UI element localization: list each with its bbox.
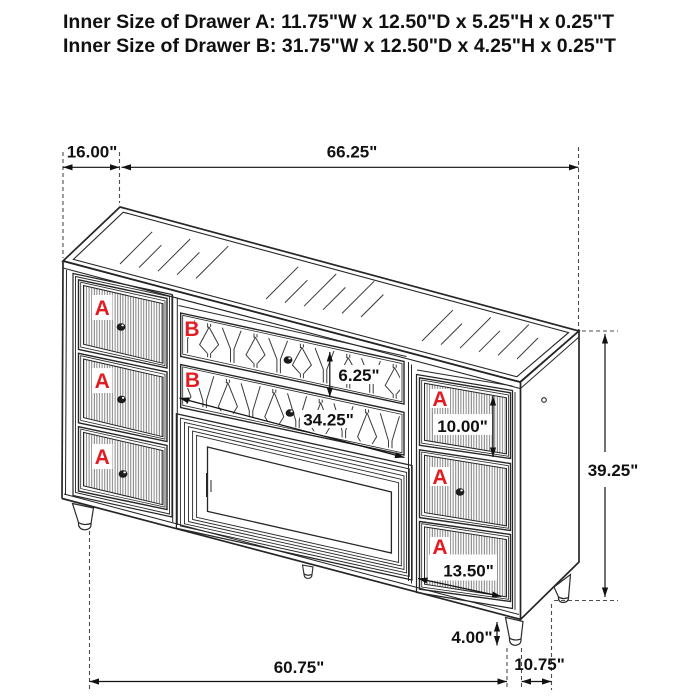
svg-text:A: A	[432, 388, 447, 411]
svg-text:10.00": 10.00"	[437, 417, 488, 436]
svg-text:13.50": 13.50"	[443, 562, 494, 581]
svg-text:16.00": 16.00"	[67, 143, 118, 162]
svg-text:A: A	[95, 370, 110, 393]
svg-text:Inner Size of Drawer A: 11.75": Inner Size of Drawer A: 11.75"W x 12.50"…	[63, 11, 614, 33]
svg-text:A: A	[95, 446, 110, 469]
svg-text:34.25": 34.25"	[303, 411, 354, 430]
svg-text:6.25": 6.25"	[338, 366, 379, 385]
svg-text:39.25": 39.25"	[588, 461, 639, 480]
svg-text:66.25": 66.25"	[327, 143, 378, 162]
svg-text:4.00": 4.00"	[451, 628, 492, 647]
svg-text:Inner Size of Drawer B: 31.75": Inner Size of Drawer B: 31.75"W x 12.50"…	[63, 35, 616, 57]
svg-text:A: A	[432, 466, 447, 489]
svg-text:B: B	[184, 318, 199, 341]
svg-text:10.75": 10.75"	[514, 655, 565, 674]
svg-text:A: A	[95, 297, 110, 320]
svg-text:B: B	[185, 369, 200, 392]
svg-text:60.75": 60.75"	[274, 658, 325, 677]
